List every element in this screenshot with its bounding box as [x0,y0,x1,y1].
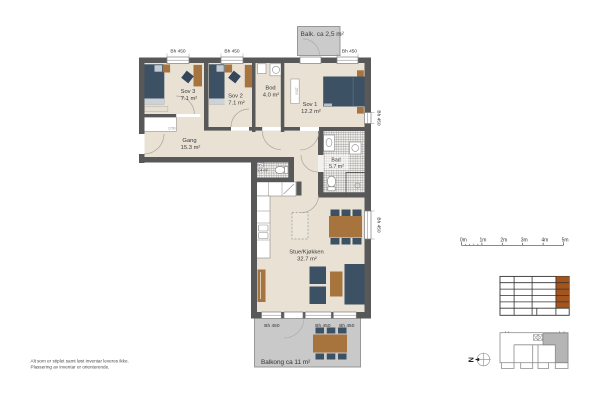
svg-text:Gang: Gang [182,138,196,144]
svg-text:Bh 450: Bh 450 [376,217,382,233]
svg-text:2m: 2m [500,238,507,244]
svg-text:5.7 m²: 5.7 m² [329,164,344,170]
svg-text:5m: 5m [562,238,569,244]
svg-text:Bh 450: Bh 450 [342,49,358,55]
svg-text:Bh 450: Bh 450 [264,323,280,329]
svg-text:Sov 3: Sov 3 [181,89,196,95]
svg-text:4.0 m²: 4.0 m² [263,92,279,98]
svg-text:Balkong ca 11 m²: Balkong ca 11 m² [261,359,310,366]
svg-text:3m: 3m [521,238,528,244]
svg-text:7.1 m²: 7.1 m² [228,100,244,106]
svg-text:Bh 450: Bh 450 [224,49,240,55]
svg-text:1700: 1700 [168,126,176,130]
svg-text:4m: 4m [541,238,548,244]
svg-text:0m: 0m [460,238,467,244]
svg-text:Sov 1: Sov 1 [303,102,318,108]
svg-text:Balk. ca 2,5 m²: Balk. ca 2,5 m² [301,31,345,38]
svg-text:32.7 m²: 32.7 m² [297,256,317,262]
svg-text:7.1 m²: 7.1 m² [181,96,197,102]
svg-text:Sov 2: Sov 2 [228,94,243,100]
svg-text:12.2 m²: 12.2 m² [301,109,321,115]
svg-text:WC: WC [257,163,264,167]
svg-text:Bad: Bad [331,158,340,164]
svg-text:Stue/Kjøkken: Stue/Kjøkken [289,250,323,256]
svg-text:Bh 450: Bh 450 [376,110,382,126]
svg-text:1500: 1500 [295,87,299,95]
svg-text:Bod: Bod [265,86,275,92]
svg-text:Plassering av inventar er orie: Plassering av inventar er orienterende. [31,365,110,370]
svg-text:N: N [466,357,475,362]
svg-text:1m: 1m [480,238,487,244]
svg-text:Alt som er stiplet samt løst i: Alt som er stiplet samt løst inventar le… [31,359,129,364]
svg-text:1.4 m²: 1.4 m² [257,169,268,173]
svg-text:15.3 m²: 15.3 m² [181,145,201,151]
svg-text:Bh 450: Bh 450 [170,49,186,55]
